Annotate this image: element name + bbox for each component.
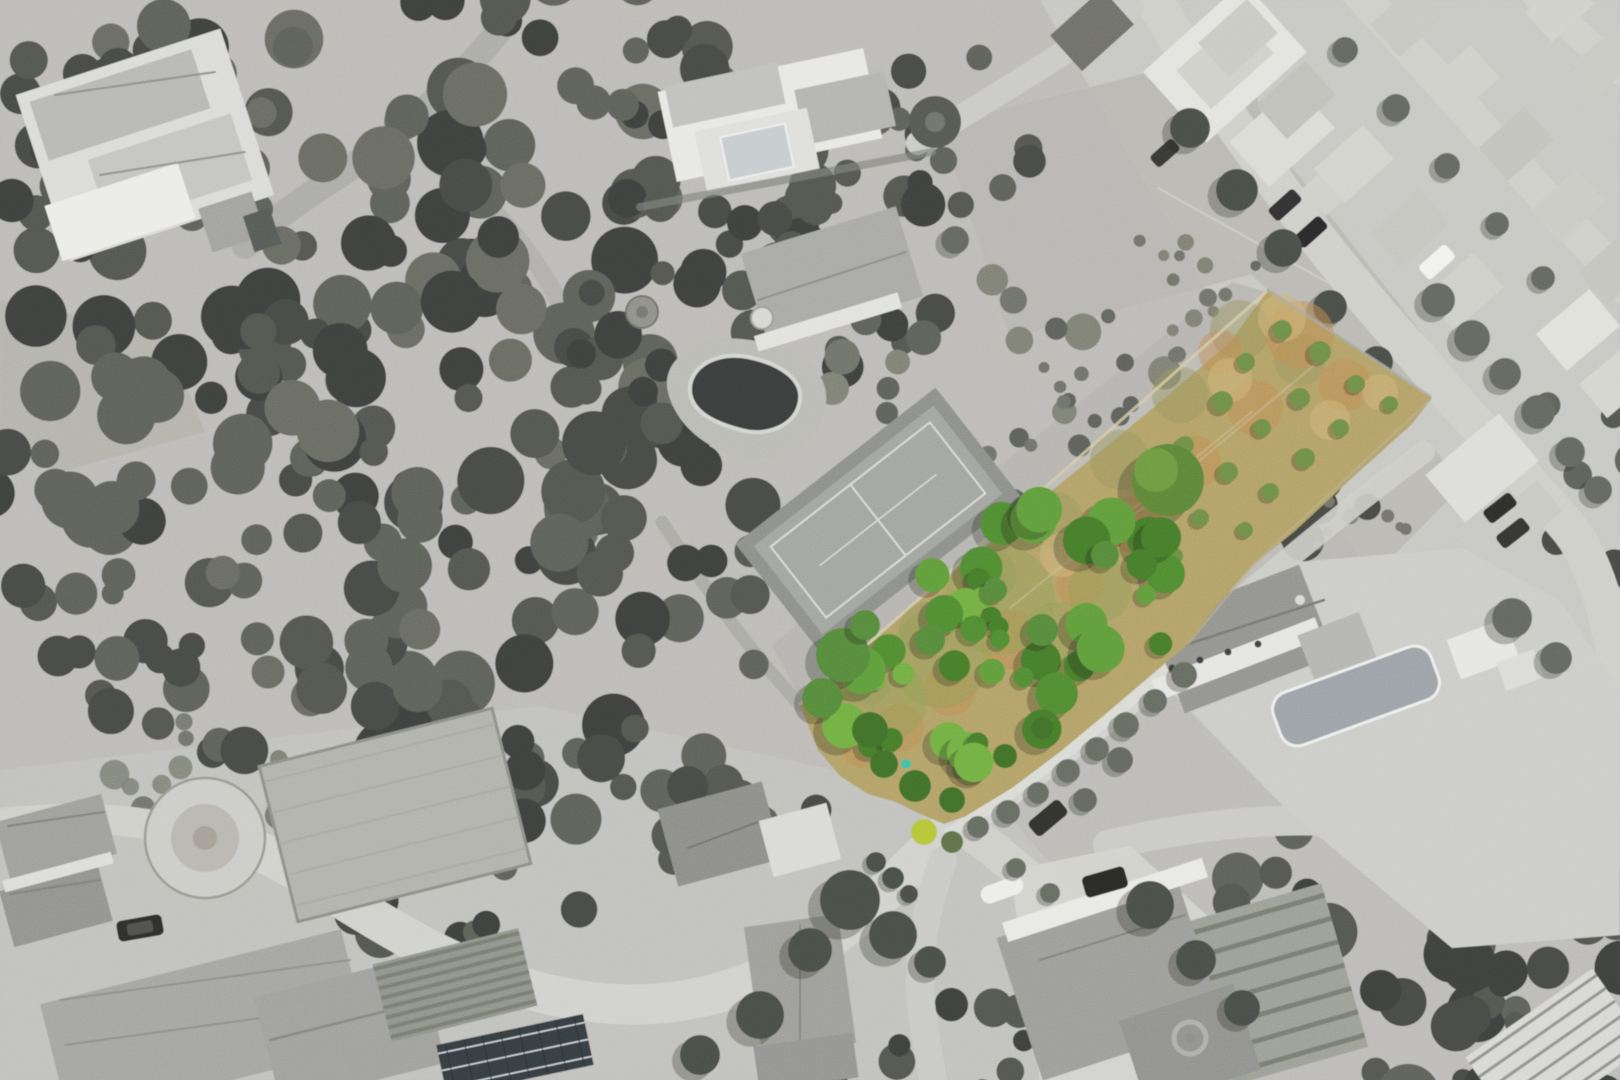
scene	[0, 0, 1620, 1080]
aerial-drone-photo	[0, 0, 1620, 1080]
aerial-photo-canvas	[0, 0, 1620, 1080]
